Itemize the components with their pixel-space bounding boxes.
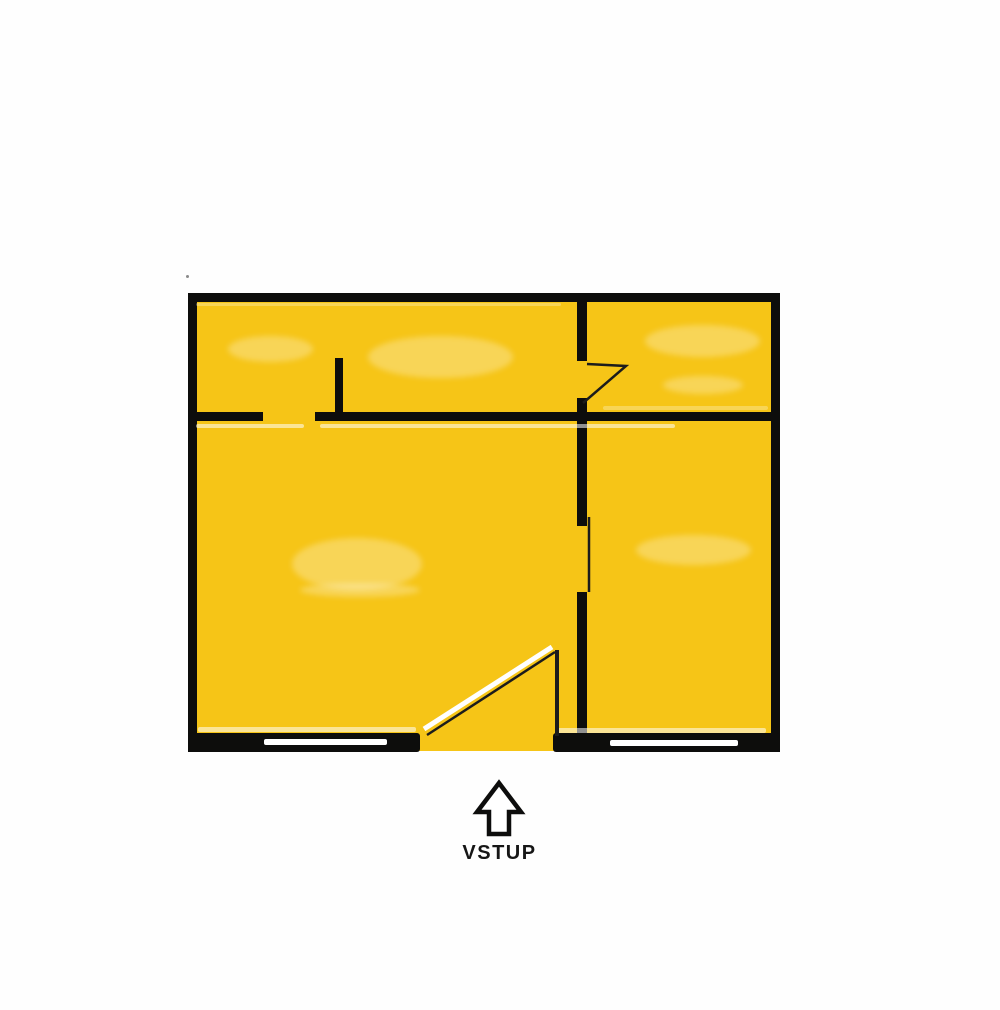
interior-wall-vertical-top (577, 295, 587, 361)
floor-smudge (645, 325, 760, 357)
floor-smudge (300, 583, 420, 597)
window-left (264, 739, 387, 745)
interior-wall-stub-topleft (335, 358, 343, 418)
artifact-dot (186, 275, 189, 278)
interior-wall-horizontal-main (315, 412, 771, 421)
up-arrow-icon (477, 783, 521, 834)
wall-highlight (320, 424, 675, 428)
floor-plan-image: VSTUP (0, 0, 1000, 1010)
interior-wall-horizontal-left (188, 412, 263, 421)
interior-wall-vertical-middle (577, 421, 587, 526)
window-right (610, 740, 738, 746)
wall-highlight (556, 728, 766, 733)
wall-highlight (196, 424, 304, 428)
outer-wall-right (771, 293, 780, 752)
floor-smudge (228, 336, 313, 362)
outer-wall-top (188, 293, 780, 302)
floor-smudge (636, 535, 751, 565)
wall-highlight (196, 303, 561, 306)
wall-highlight (603, 406, 768, 410)
wall-highlight (198, 727, 416, 732)
floor-smudge (368, 336, 513, 378)
interior-wall-vertical-door-stub (577, 398, 587, 413)
floor-smudge (663, 376, 743, 394)
interior-wall-vertical-lower (577, 592, 587, 735)
entrance-label: VSTUP (427, 842, 572, 865)
outer-wall-left (188, 293, 197, 752)
